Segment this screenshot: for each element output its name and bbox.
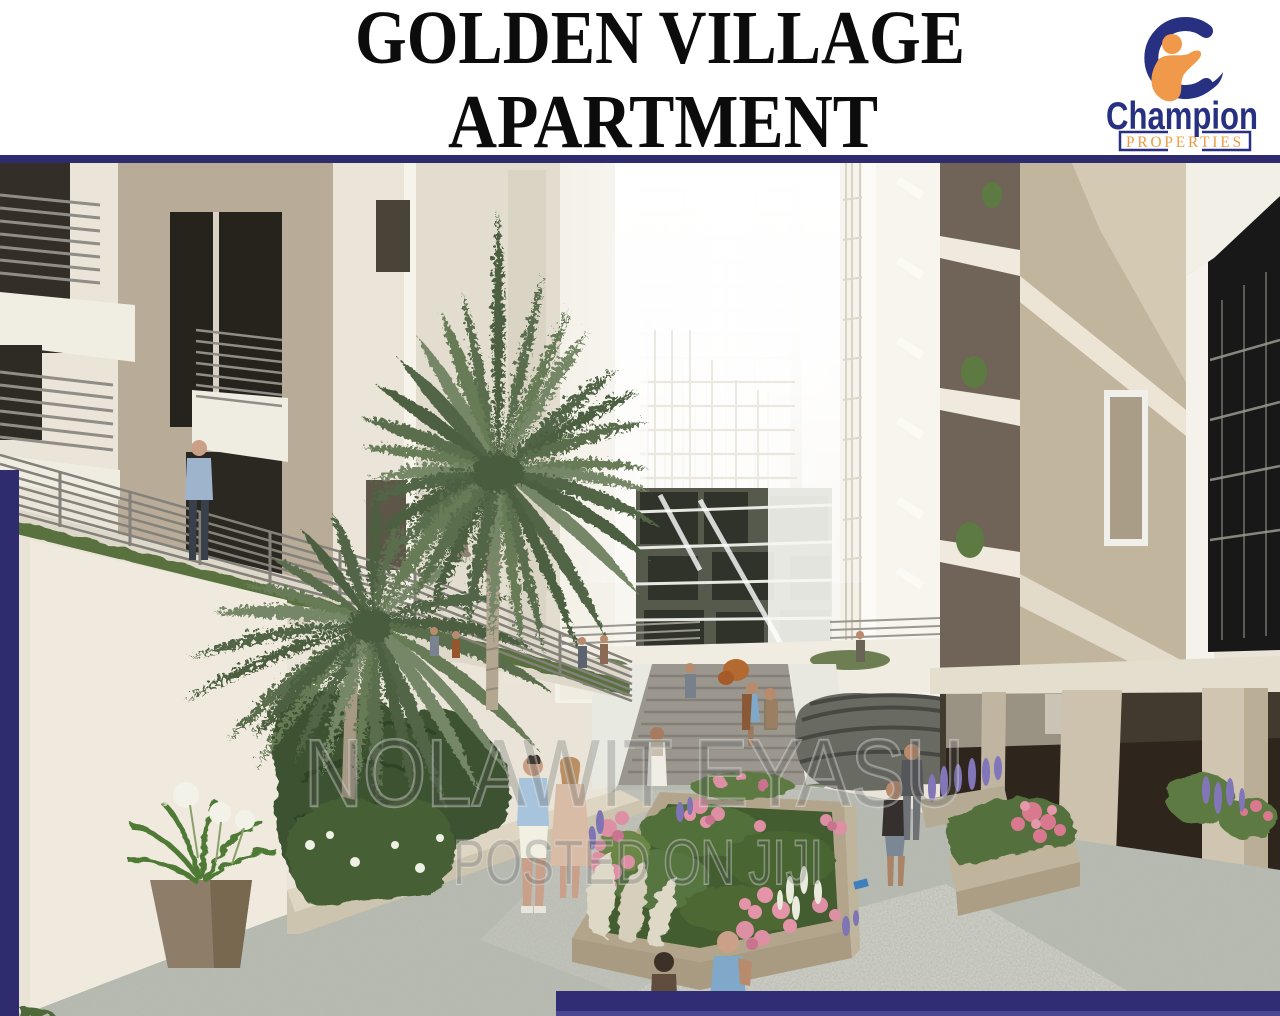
- svg-text:POSTED ON JIJI: POSTED ON JIJI: [453, 828, 823, 898]
- svg-text:APARTMENT: APARTMENT: [448, 80, 878, 164]
- svg-text:NOLAWIT EYASU: NOLAWIT EYASU: [304, 720, 964, 827]
- svg-text:PROPERTIES: PROPERTIES: [1126, 134, 1244, 151]
- svg-text:GOLDEN VILLAGE: GOLDEN VILLAGE: [355, 0, 965, 80]
